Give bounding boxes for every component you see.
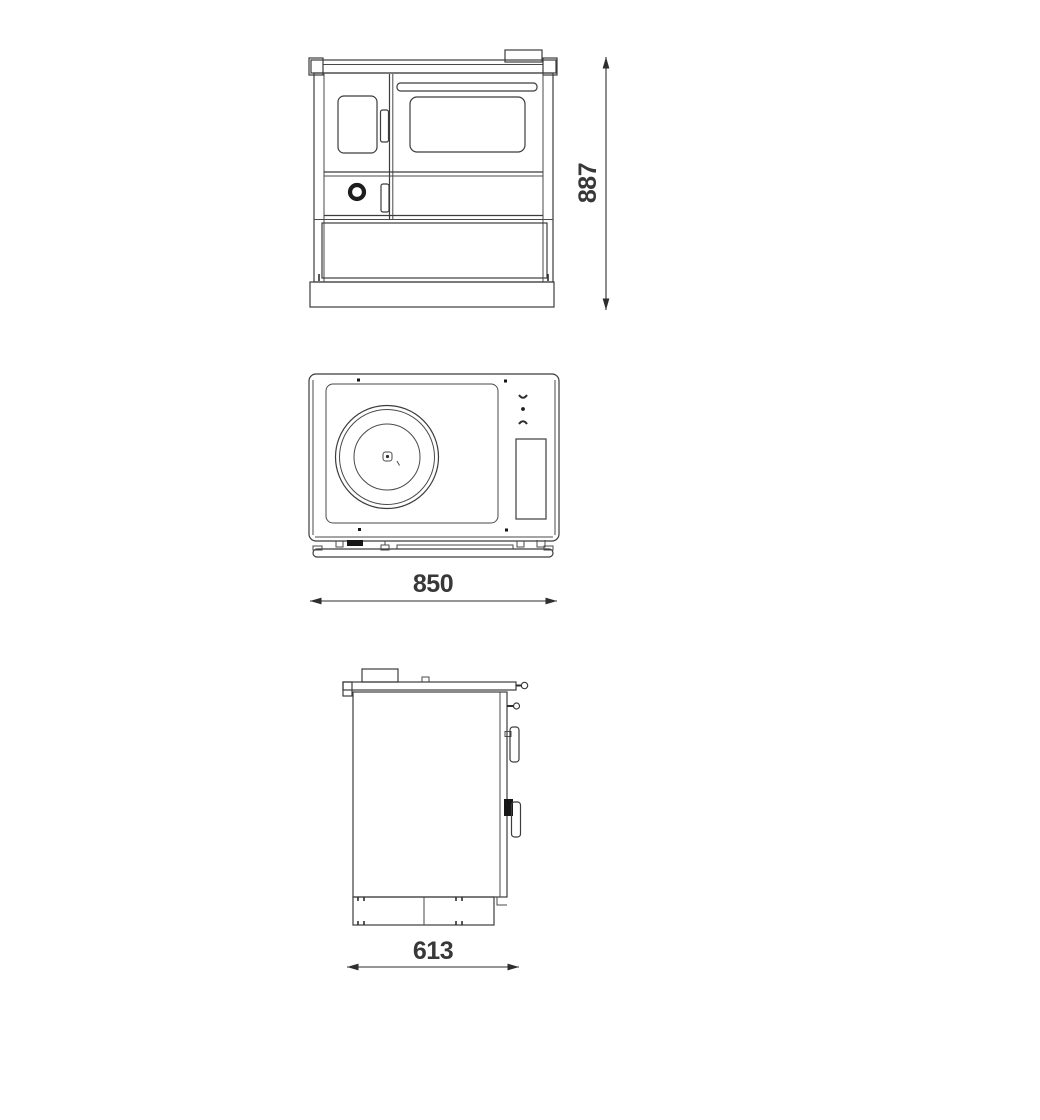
top-view bbox=[309, 374, 559, 557]
drawing-canvas: 887 bbox=[0, 0, 1040, 1120]
depth-dimension-label: 613 bbox=[413, 937, 453, 965]
side-recess bbox=[516, 439, 546, 519]
side-view bbox=[343, 669, 528, 925]
front-edge-rail bbox=[313, 540, 553, 557]
hotplate-rings bbox=[336, 406, 439, 509]
height-dimension: 887 bbox=[574, 57, 609, 310]
stove-technical-drawing: 887 bbox=[0, 0, 1040, 1120]
control-rod-knob bbox=[514, 703, 520, 709]
front-view bbox=[309, 50, 557, 307]
flue-stub-side bbox=[362, 669, 398, 682]
ash-door bbox=[350, 184, 389, 212]
firebox-door-glass bbox=[338, 96, 377, 153]
ash-door-knob bbox=[350, 185, 364, 199]
width-dimension: 850 bbox=[310, 570, 557, 604]
height-dimension-label: 887 bbox=[574, 163, 602, 203]
oven-door-handle-bar bbox=[397, 83, 537, 91]
plinth-front bbox=[310, 282, 554, 307]
stove-body-side bbox=[353, 692, 507, 897]
damper-knob bbox=[521, 682, 527, 688]
arrowhead-down bbox=[603, 299, 610, 311]
plinth-side bbox=[353, 897, 507, 925]
stove-body-front bbox=[314, 73, 553, 282]
ash-door-handle bbox=[381, 184, 389, 212]
depth-dimension: 613 bbox=[347, 937, 519, 970]
arrowhead-left bbox=[310, 598, 322, 605]
firebox-door-handle bbox=[381, 110, 389, 142]
flue-marks bbox=[519, 395, 527, 424]
arrowhead-left bbox=[347, 964, 359, 971]
arrowhead-right bbox=[546, 598, 558, 605]
oven-door bbox=[397, 83, 537, 152]
front-rail-bar bbox=[313, 549, 553, 557]
arrowhead-right bbox=[508, 964, 520, 971]
oven-door-glass bbox=[410, 97, 525, 152]
arrowhead-up bbox=[603, 57, 610, 69]
firebox-door bbox=[338, 96, 389, 153]
storage-drawer bbox=[319, 223, 548, 281]
width-dimension-label: 850 bbox=[413, 570, 453, 598]
cooktop-bump bbox=[422, 677, 429, 682]
